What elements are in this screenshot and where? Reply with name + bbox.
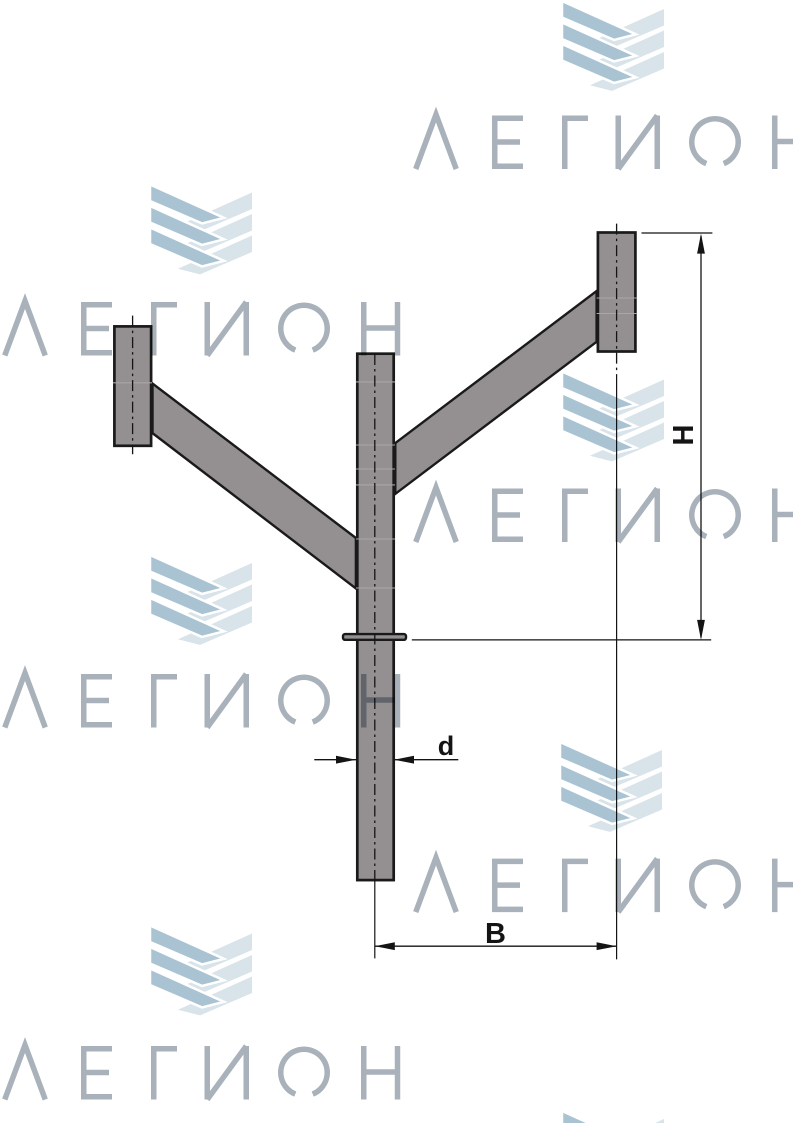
- svg-text:d: d: [438, 731, 455, 761]
- svg-text:В: В: [485, 918, 506, 950]
- svg-text:H: H: [668, 425, 700, 446]
